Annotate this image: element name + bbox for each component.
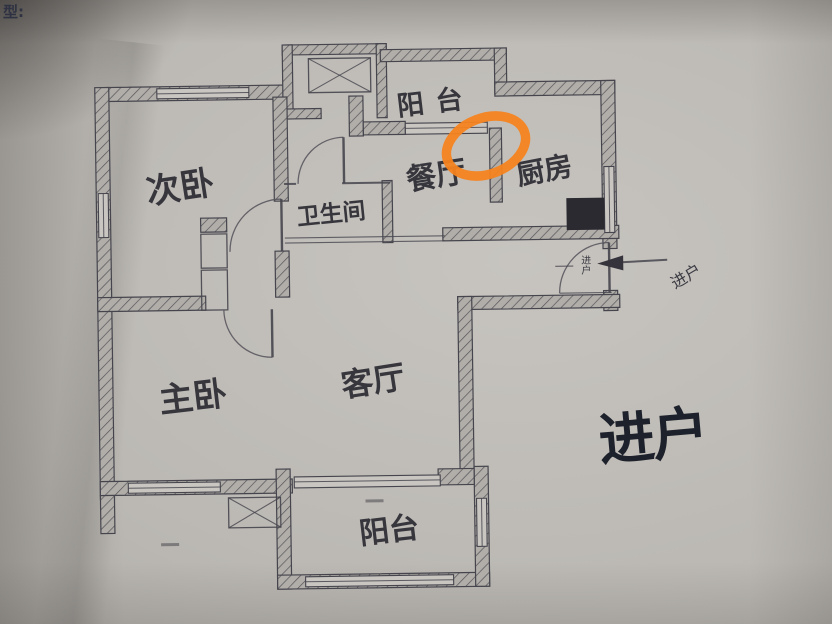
window xyxy=(157,88,249,99)
window xyxy=(477,498,488,546)
shaft-crossed-box xyxy=(308,58,370,93)
wall-segment xyxy=(380,48,506,62)
room-label-balcony-top: 阳台 xyxy=(395,82,476,123)
wall-segment xyxy=(438,468,474,485)
room-label-balcony-bottom: 阳台 xyxy=(357,510,421,552)
bathroom-top-wall xyxy=(342,183,390,184)
entry-arrow-label: 进户 xyxy=(667,260,704,293)
wall-segment xyxy=(458,296,475,476)
wall-segment xyxy=(349,96,364,136)
wall-segment xyxy=(382,181,393,243)
room-label-master-bedroom: 主卧 xyxy=(157,374,229,422)
master-bedroom-door xyxy=(224,309,273,358)
bathroom-bottom-wall xyxy=(285,236,445,238)
floorplan-photo: 进户 次卧 xyxy=(0,0,832,624)
entry-arrow-group: 进户 xyxy=(555,254,705,294)
floorplan-drawing: 进户 次卧 xyxy=(0,0,832,624)
room-label-living-room: 客厅 xyxy=(338,358,407,405)
kitchen-flue-square xyxy=(566,198,604,231)
room-label-bathroom: 卫生间 xyxy=(296,198,367,231)
wall-segment xyxy=(495,80,615,96)
wall-segment xyxy=(98,296,206,312)
closet-outline xyxy=(201,234,227,268)
wall-segment xyxy=(273,97,288,201)
secondary-bedroom-door xyxy=(229,199,282,252)
window xyxy=(294,475,440,488)
window xyxy=(306,575,454,587)
wall-segment xyxy=(458,294,620,309)
wall-segment xyxy=(283,109,321,120)
window xyxy=(128,482,220,493)
entry-door-tag: 进户 xyxy=(579,255,591,276)
wall-segment xyxy=(95,87,115,499)
room-label-secondary-bedroom: 次卧 xyxy=(144,163,217,213)
top-left-note: 型: xyxy=(3,3,24,21)
bathroom-door xyxy=(297,137,344,184)
bathroom-bottom-wall xyxy=(285,241,445,243)
wall-segment xyxy=(201,218,227,232)
window xyxy=(98,194,109,238)
entry-arrow-tail xyxy=(619,260,667,263)
wall-segment xyxy=(275,251,290,297)
window xyxy=(604,166,615,232)
wall-segment xyxy=(282,44,386,55)
wall-segment xyxy=(363,121,405,135)
entry-door: 进户 xyxy=(559,243,610,294)
entry-handwritten-note: 进户 xyxy=(596,400,709,474)
crossed-box xyxy=(228,497,280,528)
wall-segment xyxy=(276,469,292,589)
wall-segment xyxy=(100,495,115,533)
entry-sill-line xyxy=(560,292,612,293)
